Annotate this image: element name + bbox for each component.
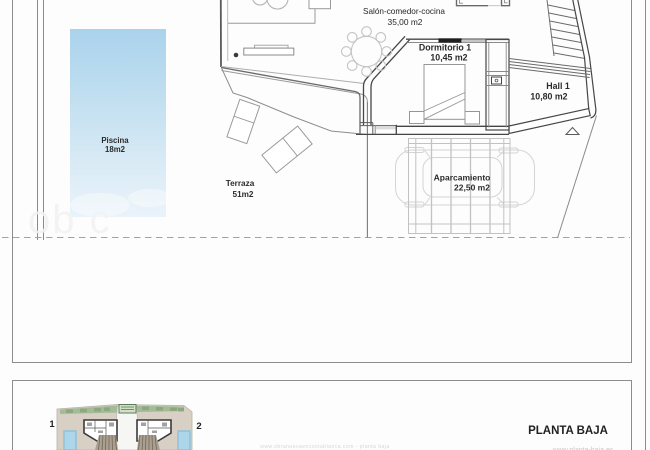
svg-text:Salón-comedor-cocina: Salón-comedor-cocina	[363, 7, 445, 16]
svg-text:PLANTA BAJA: PLANTA BAJA	[528, 425, 608, 437]
svg-text:Dormitorio 1: Dormitorio 1	[419, 43, 471, 53]
svg-text:ob c: ob c	[28, 198, 112, 242]
svg-text:Piscina: Piscina	[101, 136, 129, 145]
svg-text:1: 1	[49, 419, 55, 430]
svg-text:22,50 m2: 22,50 m2	[454, 183, 490, 193]
svg-text:2: 2	[196, 421, 201, 432]
svg-text:Terraza: Terraza	[226, 179, 255, 188]
svg-text:10,45 m2: 10,45 m2	[430, 53, 467, 63]
svg-text:www.obranuevaencostablanca.com: www.obranuevaencostablanca.com - planta …	[260, 444, 390, 450]
svg-text:51m2: 51m2	[233, 190, 254, 199]
svg-text:Aparcamiento: Aparcamiento	[434, 173, 491, 183]
svg-text:35,00 m2: 35,00 m2	[388, 17, 423, 27]
svg-text:18m2: 18m2	[105, 145, 126, 154]
svg-text:Hall 1: Hall 1	[546, 81, 570, 91]
svg-text:10,80 m2: 10,80 m2	[530, 92, 567, 102]
